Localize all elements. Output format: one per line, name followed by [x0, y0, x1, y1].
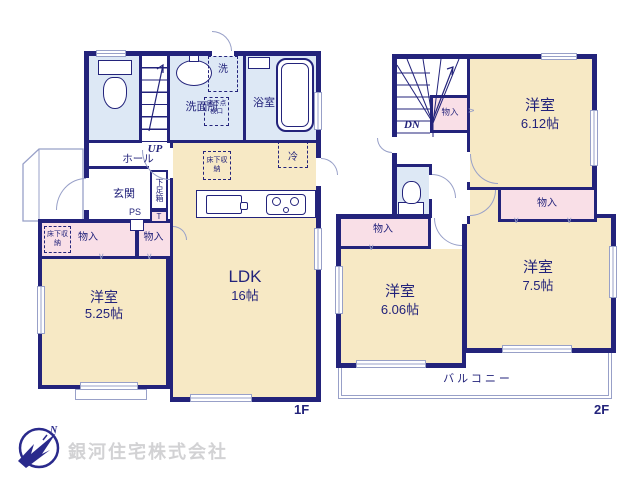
closet-bottom-left-2f-label: 物入: [348, 223, 418, 236]
hall-label: ホール: [108, 153, 168, 167]
floor1-label: 1F: [294, 402, 309, 417]
west525-size: 5.25帖: [62, 306, 146, 323]
bath-shelf: [248, 57, 270, 69]
ldk-label: LDK 16帖: [200, 266, 290, 305]
bath-label: 浴室: [246, 96, 282, 110]
hall-left-window-gap: [392, 137, 397, 153]
closet-door-mark: ∨: [98, 252, 105, 261]
window-west525-left: [37, 286, 45, 334]
toilet-bowl-1f: [103, 77, 127, 109]
shoe-box-t: T: [150, 210, 168, 223]
room606-name: 洋室: [350, 282, 450, 302]
window-toilet-top: [96, 50, 126, 57]
closet-right-2f-label: 物入: [512, 197, 582, 210]
room612-name: 洋室: [490, 96, 590, 116]
stairs-dn-label: DN: [396, 118, 428, 132]
stove-burner-left: [272, 197, 281, 206]
hall-left-window-arc: [377, 138, 392, 153]
ldk-size: 16帖: [200, 288, 290, 305]
window-ldk-bottom: [190, 394, 252, 402]
closet-door-mark: ∨: [368, 243, 375, 252]
backdoor-gap: [212, 51, 234, 56]
washbasin: [176, 60, 212, 86]
company-name: 銀河住宅株式会社: [68, 438, 228, 464]
toilet-bowl-2f: [402, 181, 421, 204]
room75-name: 洋室: [488, 258, 588, 278]
washroom-label: 洗面所: [172, 100, 232, 114]
backdoor-arc: [212, 31, 232, 51]
window-612-right: [590, 110, 598, 166]
ps-label: PS: [122, 207, 148, 219]
closet-door-mark: ∨: [513, 216, 520, 225]
kitchen-sink: [206, 195, 242, 214]
ldk-backdoor-arc: [321, 158, 338, 175]
kitchen-faucet: [240, 202, 248, 210]
window-612-top: [541, 53, 577, 60]
fridge-space: 冷: [278, 141, 308, 168]
room606-size: 6.06帖: [350, 302, 450, 319]
closet-door-mark: ∨: [146, 252, 153, 261]
svg-text:N: N: [49, 425, 58, 436]
window-bath-right: [314, 92, 322, 130]
closet-right-label: 物入: [137, 231, 170, 244]
closet-stairs-label: 物入: [432, 107, 468, 118]
window-606-left: [335, 266, 343, 314]
room612-size: 6.12帖: [490, 116, 590, 133]
west525-label: 洋室 5.25帖: [62, 288, 146, 323]
terrace-step-1f: [75, 389, 147, 400]
closet-door-mark: ∨: [467, 107, 476, 114]
washbasin-tap: [189, 55, 199, 62]
floorplan-canvas: 下足箱 T 洗 床下点検口 冷 床下収納 床下収納 ∨ ∨ UP ホール 洗面所…: [0, 0, 640, 480]
stove-burner-small: [283, 207, 289, 213]
underfloor-storage-ldk: 床下収納: [203, 151, 231, 180]
stairs-up-arrow: [142, 55, 170, 139]
room612-label: 洋室 6.12帖: [490, 96, 590, 132]
company-logo-compass-icon: N: [14, 420, 66, 472]
stove-burner-right: [290, 197, 299, 206]
bathtub-inner: [281, 63, 309, 127]
room75-size: 7.5帖: [488, 278, 588, 295]
window-75-right: [609, 246, 617, 298]
closet-door-mark: ∨: [566, 216, 573, 225]
window-606-bottom: [356, 360, 426, 368]
laundry-space: 洗: [208, 56, 238, 92]
window-west525-bottom: [80, 382, 138, 390]
room75-label: 洋室 7.5帖: [488, 258, 588, 294]
window-ldk-right: [314, 228, 322, 270]
bathtub: [276, 58, 314, 132]
west525-name: 洋室: [62, 288, 146, 306]
window-75-bottom: [502, 345, 572, 353]
balcony-label: バルコニー: [408, 372, 548, 386]
room606-label: 洋室 6.06帖: [350, 282, 450, 318]
toilet-tank-1f: [98, 60, 132, 75]
closet-left-label: 物入: [66, 231, 110, 244]
room-west-525: [38, 259, 170, 389]
ldk-name: LDK: [200, 266, 290, 288]
ps-shaft: [130, 219, 144, 231]
entrance-label: 玄関: [102, 187, 146, 201]
floor2-label: 2F: [594, 402, 609, 417]
